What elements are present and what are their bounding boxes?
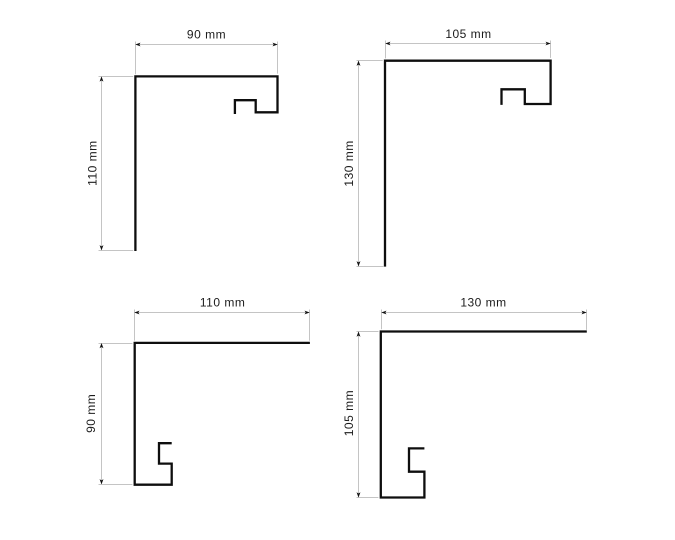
- svg-text:110 mm: 110 mm: [86, 140, 100, 185]
- svg-text:90 mm: 90 mm: [84, 394, 98, 433]
- svg-text:130 mm: 130 mm: [460, 296, 506, 310]
- svg-text:105 mm: 105 mm: [445, 27, 491, 41]
- svg-text:90 mm: 90 mm: [187, 28, 226, 42]
- svg-text:110 mm: 110 mm: [200, 296, 245, 310]
- svg-text:105 mm: 105 mm: [342, 390, 356, 436]
- svg-text:130 mm: 130 mm: [342, 140, 356, 186]
